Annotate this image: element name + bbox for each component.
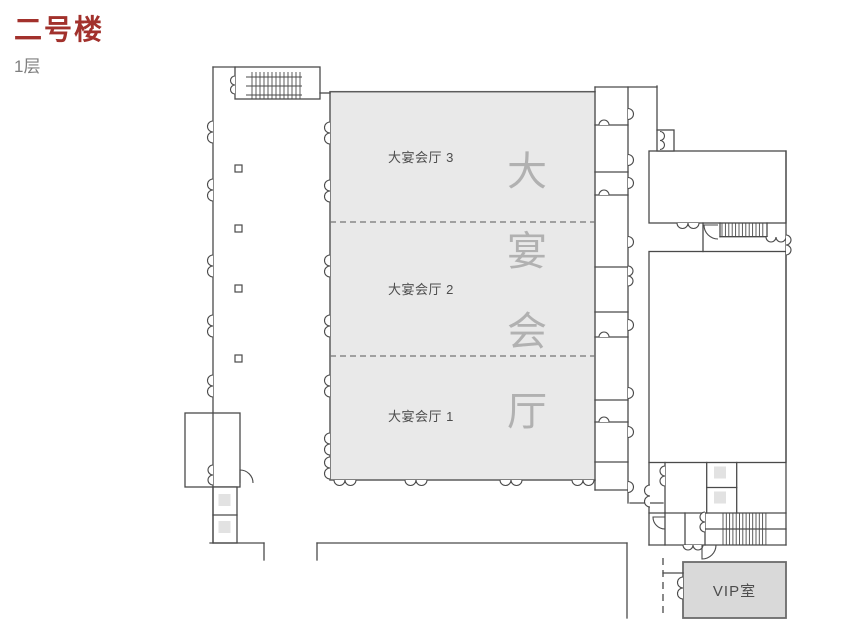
door-symbol <box>683 545 703 550</box>
door-symbol <box>645 485 651 507</box>
elevator-square <box>714 467 726 479</box>
room-top-right <box>649 151 786 223</box>
door-symbol <box>599 120 609 125</box>
door-arc <box>653 517 665 529</box>
door-symbol <box>572 480 594 486</box>
door-symbol <box>628 109 634 120</box>
page-title: 二号楼 <box>14 8 104 48</box>
watermark-char: 会 <box>507 312 547 352</box>
room-right-large <box>649 252 786 463</box>
door-arc <box>240 470 253 483</box>
staircase-room-top-left <box>235 67 320 99</box>
door-symbol <box>628 237 634 248</box>
door-symbol <box>325 180 331 202</box>
watermark-char: 宴 <box>507 232 547 272</box>
column-marker <box>235 165 242 172</box>
column-marker <box>235 225 242 232</box>
watermark-char: 大 <box>507 152 547 192</box>
hall-section-1-label: 大宴会厅 1 <box>388 406 454 425</box>
door-symbol <box>628 482 634 493</box>
door-arc <box>704 225 718 239</box>
door-symbol <box>405 480 427 486</box>
column-marker <box>235 355 242 362</box>
door-symbol <box>231 76 236 94</box>
door-symbol <box>325 375 331 397</box>
hall-section-3-label: 大宴会厅 3 <box>388 147 454 166</box>
door-symbol <box>628 320 634 331</box>
elevator-square <box>714 492 726 504</box>
door-symbol <box>599 332 609 337</box>
elevator-square <box>219 521 231 533</box>
rooms-layer <box>185 67 786 618</box>
door-symbol <box>766 237 786 242</box>
door-symbol <box>500 480 522 486</box>
door-symbol <box>628 427 634 438</box>
vestibule-top-right <box>657 130 674 151</box>
banquet-hall-area <box>330 92 595 480</box>
door-symbol <box>599 417 609 422</box>
elevator-square <box>219 494 231 506</box>
floor-plan-drawing <box>0 0 860 638</box>
door-symbol <box>599 190 609 195</box>
floor-label: 1层 <box>14 52 40 77</box>
door-symbol <box>208 255 214 277</box>
door-symbol <box>325 315 331 337</box>
door-symbol <box>334 480 356 486</box>
door-arc <box>702 545 716 559</box>
door-symbol <box>628 155 634 166</box>
door-symbol <box>325 122 331 144</box>
door-symbol <box>208 121 214 143</box>
door-symbol <box>325 433 331 455</box>
door-symbol <box>677 223 699 229</box>
door-symbol <box>208 375 214 397</box>
door-symbol <box>208 179 214 201</box>
door-symbol <box>700 512 705 532</box>
hall-section-2-label: 大宴会厅 2 <box>388 279 454 298</box>
vip-room-label: VIP室 <box>683 562 786 618</box>
column-marker <box>235 285 242 292</box>
hall-watermark-text: 大 宴 会 厅 <box>504 152 550 432</box>
door-symbol <box>325 255 331 277</box>
floor-plan-page: 二号楼 1层 大宴会厅 3 大宴会厅 2 大宴会厅 1 大 宴 会 厅 VIP室 <box>0 0 860 638</box>
door-symbol <box>660 466 665 486</box>
watermark-char: 厅 <box>507 392 547 432</box>
door-symbol <box>208 315 214 337</box>
door-symbol <box>786 235 791 255</box>
door-symbol <box>325 457 331 479</box>
door-symbol <box>628 178 634 189</box>
door-symbol <box>628 388 634 399</box>
door-symbol <box>628 266 633 286</box>
